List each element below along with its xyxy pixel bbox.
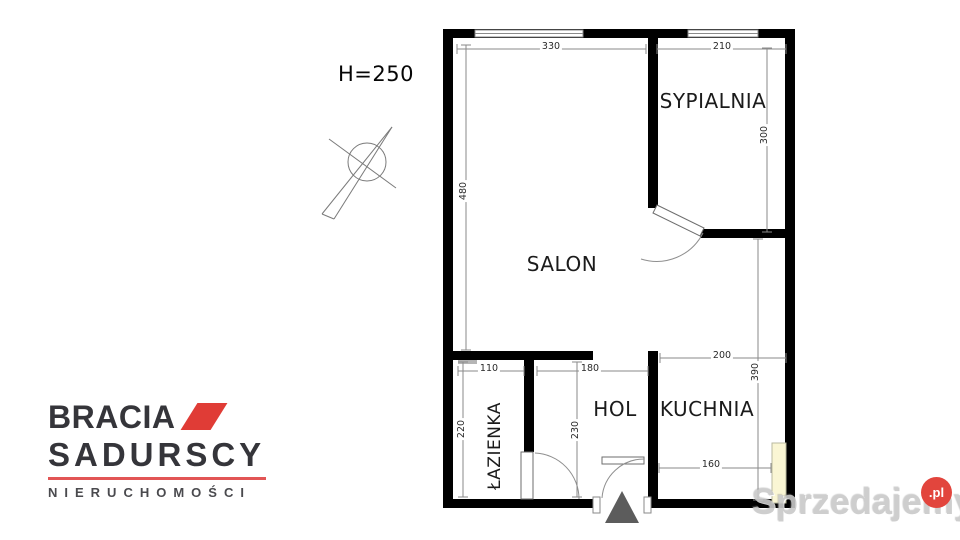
- roof-icon: [181, 403, 228, 430]
- dim-hol-width: 180: [579, 364, 601, 374]
- dim-salon-width: 330: [540, 42, 562, 52]
- room-label-lazienka: ŁAZIENKA: [485, 402, 505, 490]
- room-label-kuchnia: KUCHNIA: [660, 397, 754, 421]
- room-label-hol: HOL: [593, 397, 636, 421]
- floorplan-page: H=250 SALON SYPIALNIA KUCHNIA HOL ŁAZIEN…: [0, 0, 960, 540]
- dim-kuchnia-width: 200: [711, 351, 733, 361]
- logo-tagline: NIERUCHOMOŚCI: [48, 485, 288, 500]
- logo-divider: [48, 477, 266, 480]
- watermark-pl-badge: .pl: [921, 477, 952, 508]
- door-symbol-bathroom: [521, 452, 579, 499]
- dim-salon-depth: 480: [459, 180, 469, 202]
- ceiling-height-note: H=250: [338, 62, 414, 86]
- door-symbol-bedroom: [641, 205, 704, 261]
- dim-sypialnia-depth: 300: [760, 124, 770, 146]
- dim-sypialnia-width: 210: [711, 42, 733, 52]
- logo-word-bracia: BRACIA: [48, 401, 175, 433]
- dim-lazienka-depth: 220: [457, 418, 467, 440]
- logo-word-sadurscy: SADURSCY: [48, 438, 288, 471]
- agency-logo: BRACIA SADURSCY NIERUCHOMOŚCI: [48, 401, 288, 500]
- dim-lazienka-width: 110: [478, 364, 500, 374]
- dim-hol-depth: 230: [571, 419, 581, 441]
- room-label-sypialnia: SYPIALNIA: [660, 89, 767, 113]
- door-symbol-entrance: [602, 457, 644, 498]
- dim-kuchnia-depth: 390: [751, 361, 761, 383]
- dim-kuchnia-lower-width: 160: [700, 460, 722, 470]
- room-label-salon: SALON: [527, 252, 597, 276]
- north-arrow-icon: [322, 127, 396, 219]
